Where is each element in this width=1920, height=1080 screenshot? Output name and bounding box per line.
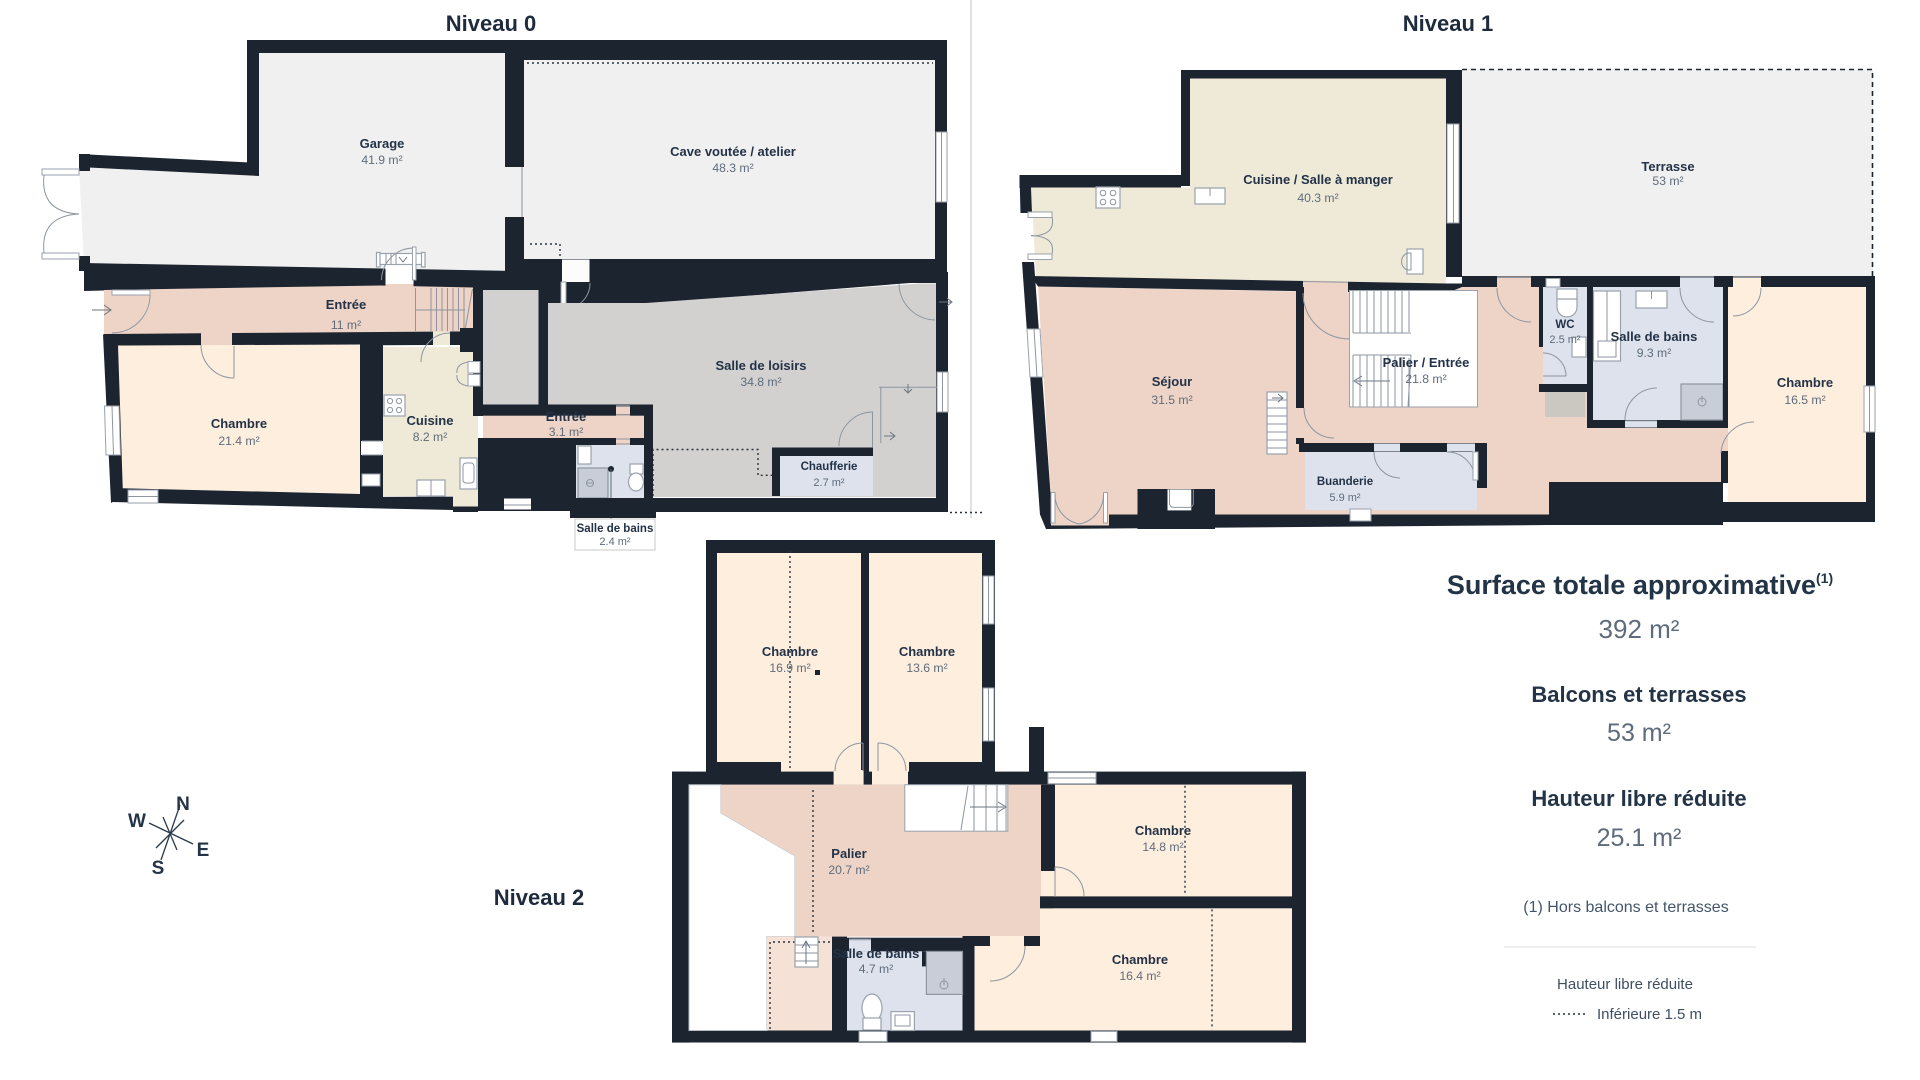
svg-text:Chambre: Chambre [899,644,955,659]
svg-text:Garage: Garage [360,136,405,151]
svg-text:2.7 m²: 2.7 m² [813,477,845,489]
svg-text:20.7 m²: 20.7 m² [828,863,869,877]
svg-text:E: E [197,840,210,861]
svg-text:16.5 m²: 16.5 m² [1784,393,1825,407]
svg-text:3.1 m²: 3.1 m² [549,425,584,439]
svg-text:9.3 m²: 9.3 m² [1637,346,1672,360]
svg-text:Entrée: Entrée [546,409,586,424]
svg-text:Chambre: Chambre [211,416,267,431]
svg-text:(1) Hors balcons et terrasses: (1) Hors balcons et terrasses [1523,899,1728,916]
svg-text:Palier: Palier [831,846,866,861]
svg-text:W: W [128,811,146,832]
svg-text:2.4 m²: 2.4 m² [599,536,631,548]
svg-text:WC: WC [1555,319,1574,331]
svg-text:Inférieure 1.5 m: Inférieure 1.5 m [1597,1006,1702,1023]
svg-text:53 m²: 53 m² [1652,174,1683,188]
svg-text:Palier / Entrée: Palier / Entrée [1383,355,1470,370]
svg-text:Chambre: Chambre [1777,375,1833,390]
svg-text:S: S [152,858,165,879]
svg-text:Chaufferie: Chaufferie [801,461,858,473]
svg-text:Balcons et terrasses: Balcons et terrasses [1531,682,1746,707]
svg-text:41.9 m²: 41.9 m² [361,153,402,167]
svg-text:392 m²: 392 m² [1599,614,1680,644]
svg-text:Cave voutée / atelier: Cave voutée / atelier [670,144,796,159]
svg-text:Niveau 1: Niveau 1 [1403,11,1494,36]
svg-text:21.8 m²: 21.8 m² [1405,372,1446,386]
svg-text:Niveau 0: Niveau 0 [446,11,537,36]
svg-text:21.4 m²: 21.4 m² [218,434,259,448]
svg-text:Séjour: Séjour [1152,374,1192,389]
svg-text:13.6 m²: 13.6 m² [906,661,947,675]
svg-text:2.5 m²: 2.5 m² [1549,334,1581,346]
svg-text:14.8 m²: 14.8 m² [1142,840,1183,854]
svg-text:Salle de bains: Salle de bains [1611,329,1698,344]
svg-text:53 m²: 53 m² [1607,719,1671,747]
svg-text:31.5 m²: 31.5 m² [1151,393,1192,407]
svg-text:16.9 m²: 16.9 m² [769,661,810,675]
svg-text:4.7 m²: 4.7 m² [859,962,894,976]
svg-text:34.8 m²: 34.8 m² [740,375,781,389]
svg-text:Buanderie: Buanderie [1317,476,1373,488]
svg-text:Surface totale approximative(1: Surface totale approximative(1) [1447,570,1833,600]
svg-text:Cuisine: Cuisine [407,413,454,428]
svg-text:5.9 m²: 5.9 m² [1329,492,1361,504]
svg-text:8.2 m²: 8.2 m² [413,430,448,444]
svg-text:Chambre: Chambre [762,644,818,659]
svg-text:Hauteur libre réduite: Hauteur libre réduite [1557,976,1693,993]
svg-text:Salle de loisirs: Salle de loisirs [715,358,806,373]
svg-text:Chambre: Chambre [1135,823,1191,838]
svg-text:Salle de bains: Salle de bains [577,523,654,535]
svg-text:Terrasse: Terrasse [1641,159,1694,174]
svg-text:Entrée: Entrée [326,297,366,312]
svg-text:Chambre: Chambre [1112,952,1168,967]
svg-text:11 m²: 11 m² [331,318,361,332]
svg-text:N: N [176,794,190,815]
svg-text:Cuisine / Salle à manger: Cuisine / Salle à manger [1243,172,1393,187]
svg-text:Salle de bains: Salle de bains [833,946,920,961]
svg-text:25.1 m²: 25.1 m² [1597,824,1682,852]
svg-text:Niveau 2: Niveau 2 [494,885,585,910]
svg-text:16.4 m²: 16.4 m² [1119,969,1160,983]
svg-text:Hauteur libre réduite: Hauteur libre réduite [1531,786,1746,811]
svg-text:48.3 m²: 48.3 m² [712,161,753,175]
svg-text:40.3 m²: 40.3 m² [1297,191,1338,205]
